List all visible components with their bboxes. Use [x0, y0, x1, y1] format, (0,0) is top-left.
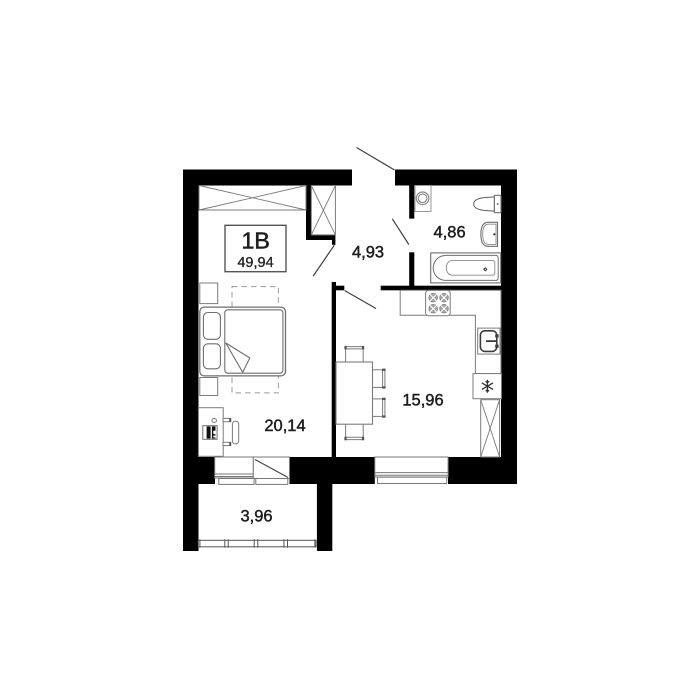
svg-text:3,96: 3,96	[240, 508, 272, 526]
svg-text:4,93: 4,93	[352, 244, 384, 262]
svg-text:1В: 1В	[241, 228, 269, 254]
svg-text:20,14: 20,14	[264, 417, 305, 435]
svg-text:4,86: 4,86	[434, 224, 466, 242]
svg-text:15,96: 15,96	[402, 392, 443, 410]
svg-text:49,94: 49,94	[237, 255, 273, 271]
